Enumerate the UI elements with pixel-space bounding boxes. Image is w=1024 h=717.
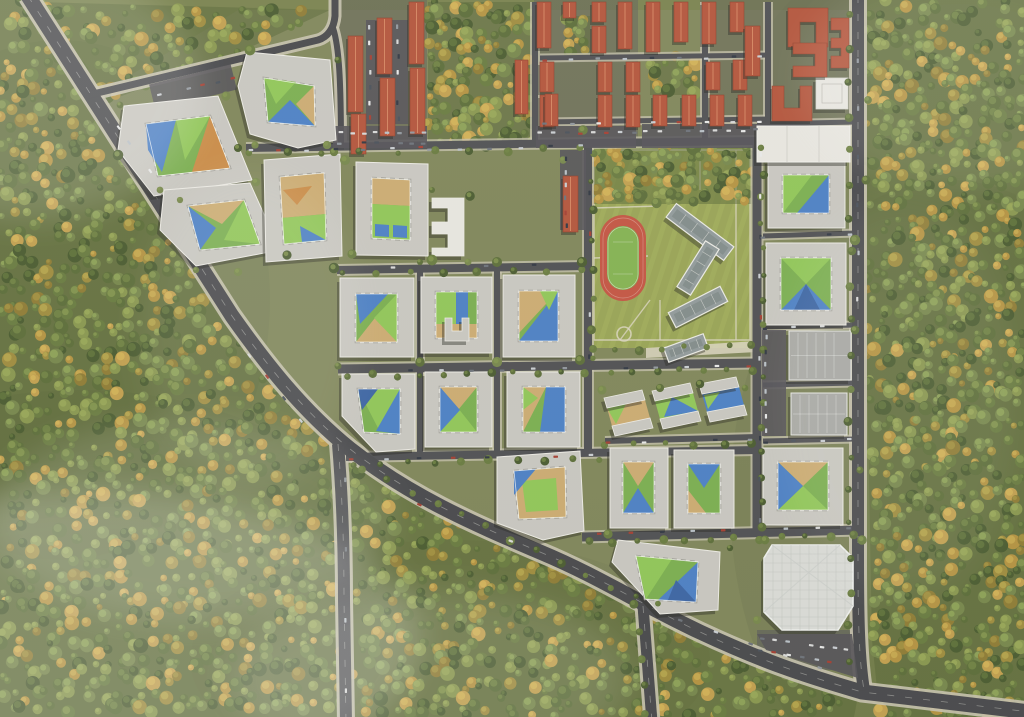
color-grade-overlay [0, 0, 1024, 717]
masterplan-svg [0, 0, 1024, 717]
aerial-masterplan-render [0, 0, 1024, 717]
grade-layer [0, 0, 1024, 717]
